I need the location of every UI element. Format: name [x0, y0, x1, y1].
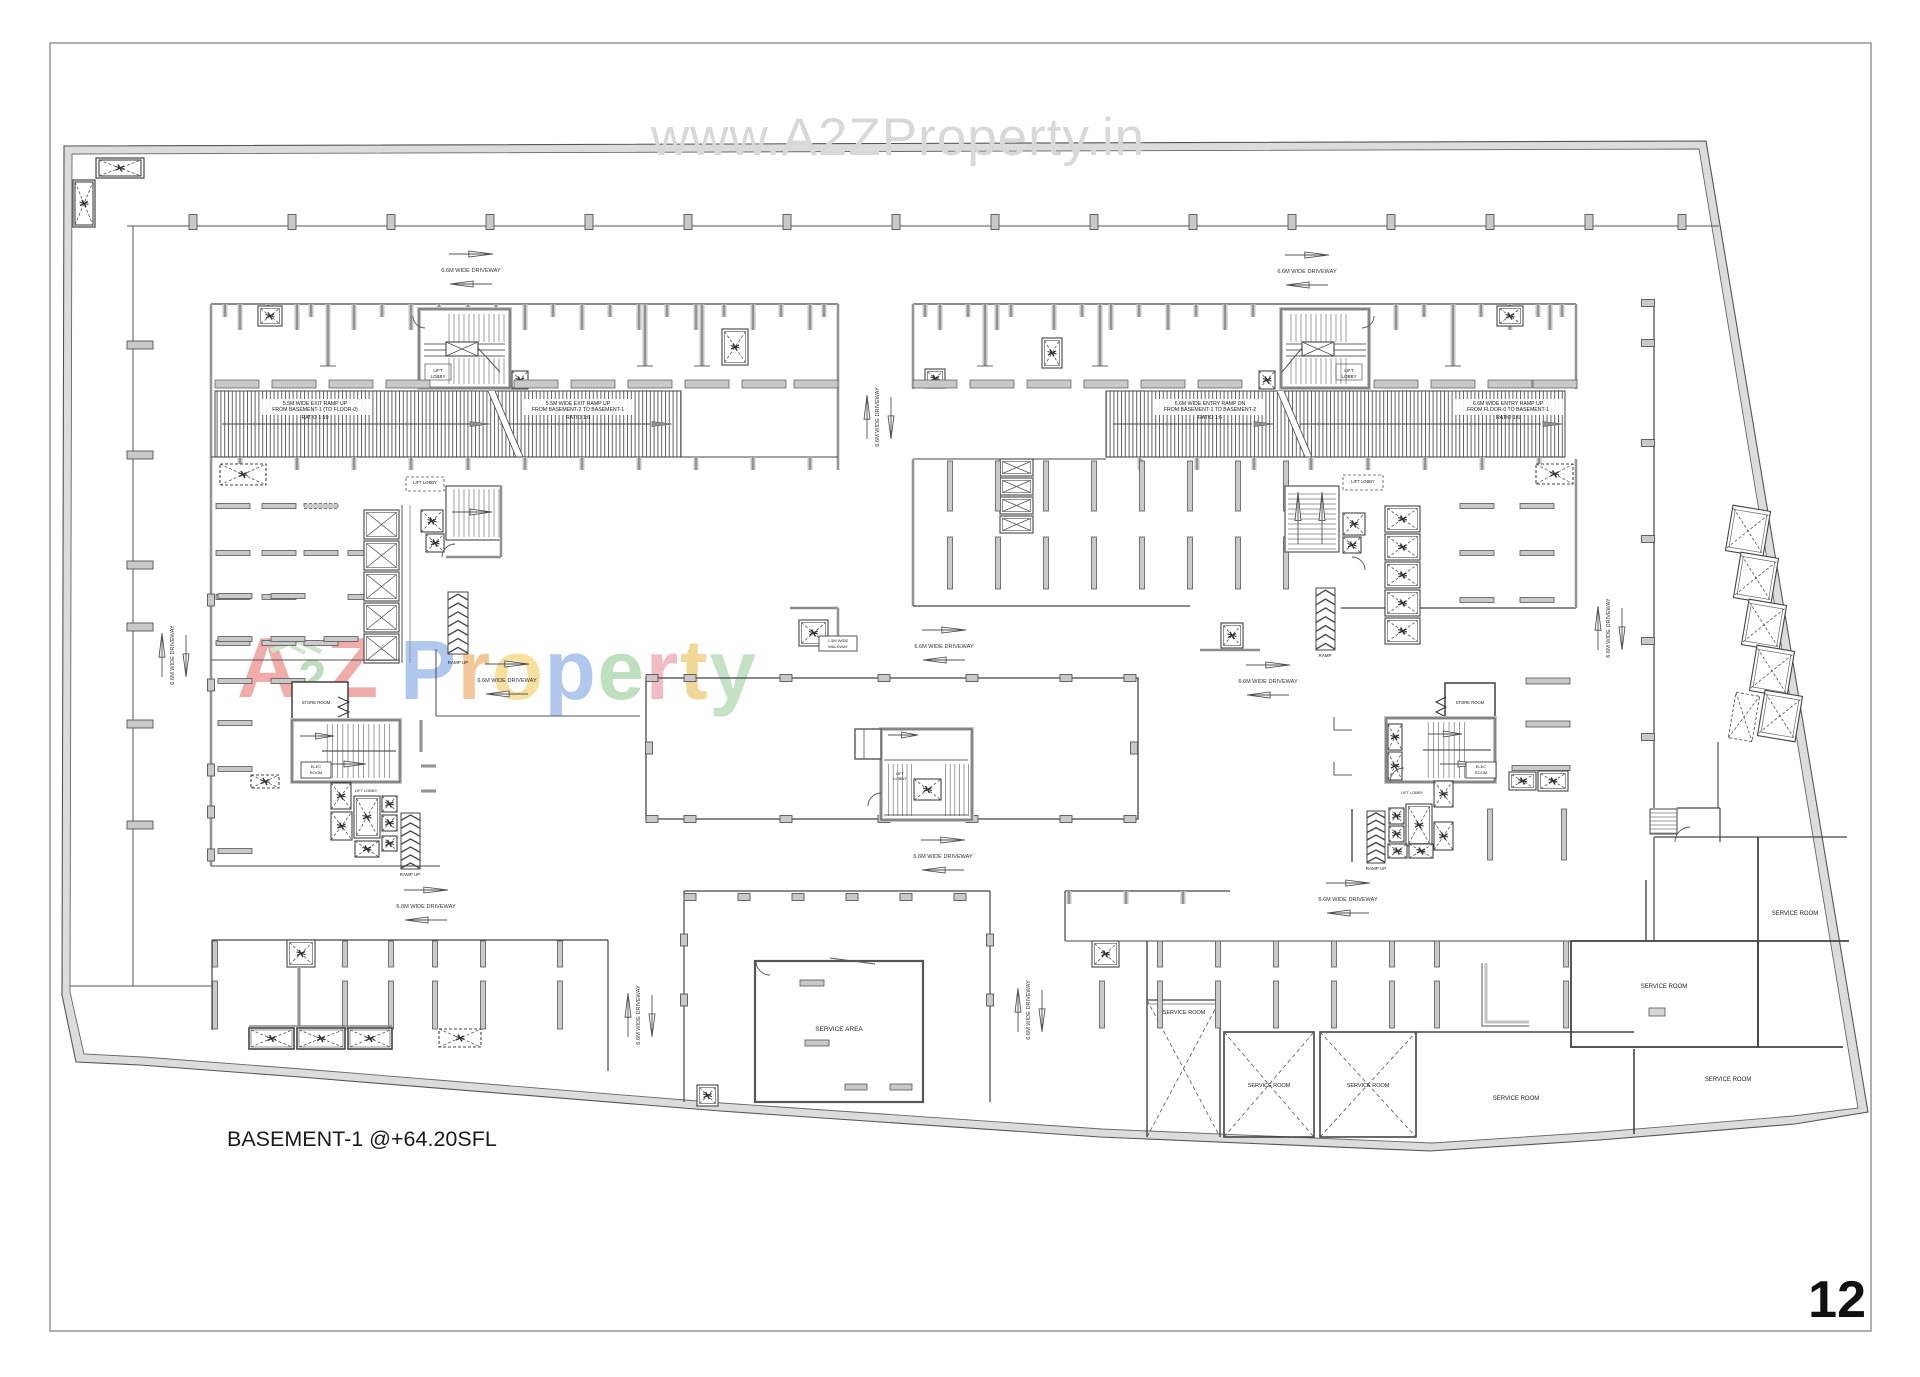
svg-text:ELEC: ELEC [311, 764, 322, 769]
svg-text:WALKWAY: WALKWAY [828, 644, 848, 649]
svg-text:6.6M WIDE DRIVEWAY: 6.6M WIDE DRIVEWAY [396, 904, 456, 910]
svg-text:SERVICE ROOM: SERVICE ROOM [1163, 1010, 1206, 1016]
svg-text:ROOM: ROOM [1475, 770, 1487, 775]
svg-text:STORE ROOM: STORE ROOM [302, 700, 331, 705]
svg-text:LIFT LOBBY: LIFT LOBBY [355, 788, 378, 793]
svg-text:6.6M WIDE DRIVEWAY: 6.6M WIDE DRIVEWAY [1277, 269, 1337, 275]
svg-text:LIFT LOBBY: LIFT LOBBY [1351, 479, 1375, 484]
svg-text:LOBBY: LOBBY [893, 776, 907, 781]
svg-text:SERVICE ROOM: SERVICE ROOM [1772, 911, 1819, 917]
svg-text:FROM BASEMENT-1 TO BASEMENT-2: FROM BASEMENT-1 TO BASEMENT-2 [1164, 407, 1256, 413]
svg-text:12: 12 [1808, 1271, 1866, 1329]
svg-text:RAMP: RAMP [1318, 653, 1331, 658]
svg-text:6.6M WIDE DRIVEWAY: 6.6M WIDE DRIVEWAY [1606, 598, 1612, 658]
svg-text:LOBBY: LOBBY [1341, 374, 1356, 379]
svg-text:FROM FLOOR-0 TO BASEMENT-1: FROM FLOOR-0 TO BASEMENT-1 [1467, 407, 1549, 413]
svg-text:6.6M WIDE DRIVEWAY: 6.6M WIDE DRIVEWAY [1026, 980, 1032, 1040]
svg-text:LIFT: LIFT [1344, 368, 1354, 373]
svg-text:SERVICE ROOM: SERVICE ROOM [1705, 1077, 1752, 1083]
svg-text:LOBBY: LOBBY [430, 374, 445, 379]
svg-text:www.A2ZProperty.in: www.A2ZProperty.in [650, 108, 1145, 167]
svg-text:RATIO 1:10: RATIO 1:10 [301, 415, 328, 421]
svg-text:FROM BASEMENT-1 (TO FLOOR-0): FROM BASEMENT-1 (TO FLOOR-0) [272, 407, 358, 413]
svg-text:RATIO 1:6: RATIO 1:6 [1198, 415, 1222, 421]
svg-text:LIFT: LIFT [433, 368, 443, 373]
svg-text:BASEMENT-1 @+64.20SFL: BASEMENT-1 @+64.20SFL [227, 1127, 497, 1151]
svg-text:6.6M WIDE DRIVEWAY: 6.6M WIDE DRIVEWAY [913, 854, 973, 860]
svg-text:6.6M WIDE DRIVEWAY: 6.6M WIDE DRIVEWAY [875, 387, 881, 447]
svg-text:6.6M WIDE DRIVEWAY: 6.6M WIDE DRIVEWAY [170, 625, 176, 685]
svg-text:RATIO 1:6: RATIO 1:6 [1496, 415, 1520, 421]
svg-text:6.6M WIDE DRIVEWAY: 6.6M WIDE DRIVEWAY [477, 678, 537, 684]
svg-text:RAMP UP: RAMP UP [1366, 866, 1386, 871]
svg-text:RAMP UP: RAMP UP [448, 660, 468, 665]
svg-text:SERVICE ROOM: SERVICE ROOM [1347, 1083, 1390, 1089]
svg-text:LIFT LOBBY: LIFT LOBBY [413, 480, 437, 485]
svg-text:STORE ROOM: STORE ROOM [1456, 700, 1485, 705]
svg-text:LIFT LOBBY: LIFT LOBBY [1401, 790, 1424, 795]
svg-text:1.5M WIDE: 1.5M WIDE [828, 638, 849, 643]
svg-text:ELEC: ELEC [1476, 764, 1487, 769]
svg-text:RATIO 1:6: RATIO 1:6 [566, 415, 590, 421]
svg-text:6.6M WIDE DRIVEWAY: 6.6M WIDE DRIVEWAY [1318, 897, 1378, 903]
svg-text:SERVICE AREA: SERVICE AREA [815, 1026, 863, 1033]
svg-text:6.6M WIDE DRIVEWAY: 6.6M WIDE DRIVEWAY [1238, 679, 1298, 685]
svg-text:6.6M WIDE DRIVEWAY: 6.6M WIDE DRIVEWAY [441, 268, 501, 274]
svg-text:FROM BASEMENT-2 TO BASEMENT-1: FROM BASEMENT-2 TO BASEMENT-1 [532, 407, 624, 413]
svg-text:SERVICE ROOM: SERVICE ROOM [1248, 1083, 1291, 1089]
svg-text:SERVICE ROOM: SERVICE ROOM [1493, 1096, 1540, 1102]
svg-text:6.6M WIDE DRIVEWAY: 6.6M WIDE DRIVEWAY [914, 644, 974, 650]
svg-text:SERVICE ROOM: SERVICE ROOM [1641, 984, 1688, 990]
svg-text:6.6M WIDE DRIVEWAY: 6.6M WIDE DRIVEWAY [636, 985, 642, 1045]
svg-text:RAMP UP: RAMP UP [400, 872, 420, 877]
svg-text:ROOM: ROOM [310, 770, 322, 775]
